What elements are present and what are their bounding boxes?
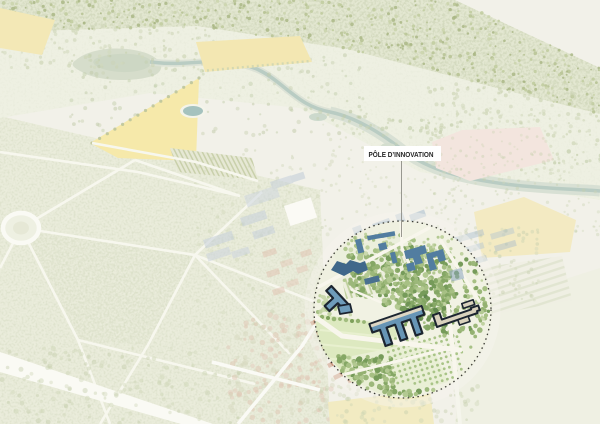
svg-text:PÔLE D’INNOVATION: PÔLE D’INNOVATION <box>369 150 434 159</box>
